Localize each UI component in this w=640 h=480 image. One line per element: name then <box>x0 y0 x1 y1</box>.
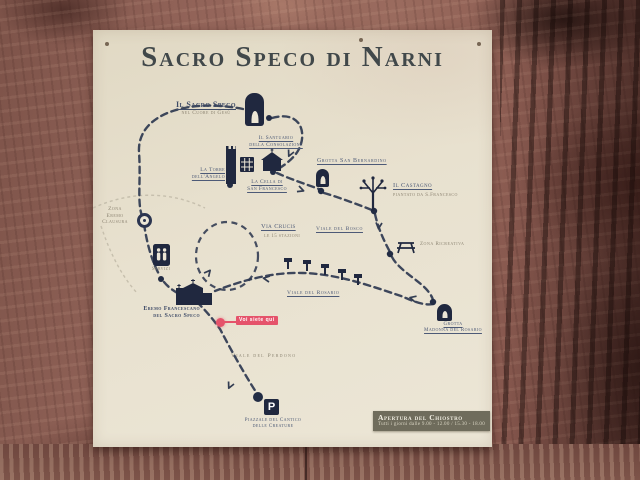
arrow-icon <box>226 381 234 389</box>
label-torre-angelo: La Torre dell'Angelo <box>185 167 225 180</box>
wood-bottom-strip <box>0 444 640 480</box>
opening-hours-title: Apertura del Chiostro <box>378 413 485 422</box>
post-stem <box>324 268 326 275</box>
picnic-table-icon <box>396 238 416 255</box>
arrow-icon <box>297 186 305 194</box>
you-are-here-label: Voi siete qui <box>236 316 278 325</box>
opening-hours-box: Apertura del Chiostro Tutti i giorni dal… <box>373 411 490 431</box>
you-are-here-line <box>224 321 236 323</box>
label-santuario-consolazione: Il Santuario della Consolazione <box>243 135 309 148</box>
station-post-icon <box>354 274 362 285</box>
label-zona-ricreativa: Zona Ricreativa <box>420 242 464 248</box>
station-post-icon <box>338 269 346 280</box>
wood-dark-streaks <box>500 0 640 480</box>
label-servizi: Servizi <box>146 267 176 273</box>
sublabel-via-crucis: le 15 stazioni <box>264 234 300 240</box>
label-castagno: Il Castagno <box>393 182 432 190</box>
ring-icon <box>137 213 152 228</box>
label-zona-eremo-clausura: Zona Eremo Clausura <box>93 206 137 226</box>
wood-plank-seam <box>305 446 307 480</box>
grotto-opening <box>320 176 325 184</box>
grotto-opening <box>251 111 258 123</box>
post-stem <box>287 262 289 269</box>
tower-crenellation <box>226 146 236 149</box>
ring-center <box>143 219 146 222</box>
label-eremo-francescano: Eremo Francescano del Sacro Speco <box>122 306 200 320</box>
label-grotta-madonna-rosario: Grotta Madonna del Rosario <box>418 322 488 334</box>
label-via-crucis: Via Crucis <box>261 223 296 231</box>
post-stem <box>306 264 308 271</box>
bell-grotto-icon <box>437 304 452 321</box>
label-sacro-speco: Il Sacro Speco nel Cuore di Gesù <box>171 100 241 116</box>
grotto-arch-icon <box>245 93 264 126</box>
label-grotta-san-bernardino: Grotta San Bernardino <box>317 158 387 165</box>
station-post-icon <box>321 264 329 275</box>
boundary-line <box>101 226 138 294</box>
arrow-icon <box>204 268 212 276</box>
label-viale-del-bosco: Viale del Bosco <box>316 226 363 233</box>
restroom-icon <box>153 244 170 266</box>
label-viale-del-perdono: Viale del Perdono <box>231 353 296 360</box>
grotto-opening <box>442 311 447 318</box>
sublabel-castagno: piantato da S.Francesco <box>393 193 458 199</box>
label-viale-del-rosario: Viale del Rosario <box>287 290 339 297</box>
station-post-icon <box>284 258 292 269</box>
label-piazzale-cantico: Piazzale del Cantico delle Creature <box>233 418 313 430</box>
sign-panel: Sacro Speco di Narni <box>93 30 492 447</box>
opening-hours-text: Tutti i giorni dalle 9.00 - 12.00 / 15.3… <box>378 422 485 429</box>
post-stem <box>341 273 343 280</box>
monastery-icon <box>173 278 215 305</box>
station-post-icon <box>303 260 311 271</box>
cloister-grid-icon <box>240 157 254 172</box>
tower-icon <box>226 149 236 184</box>
label-cella-san-francesco: La Cella di San Francesco <box>241 179 293 192</box>
grotto-arch-icon <box>316 169 329 187</box>
church-icon <box>261 148 283 172</box>
tree-icon <box>357 175 389 211</box>
post-stem <box>357 278 359 285</box>
parking-icon: P <box>264 399 279 415</box>
